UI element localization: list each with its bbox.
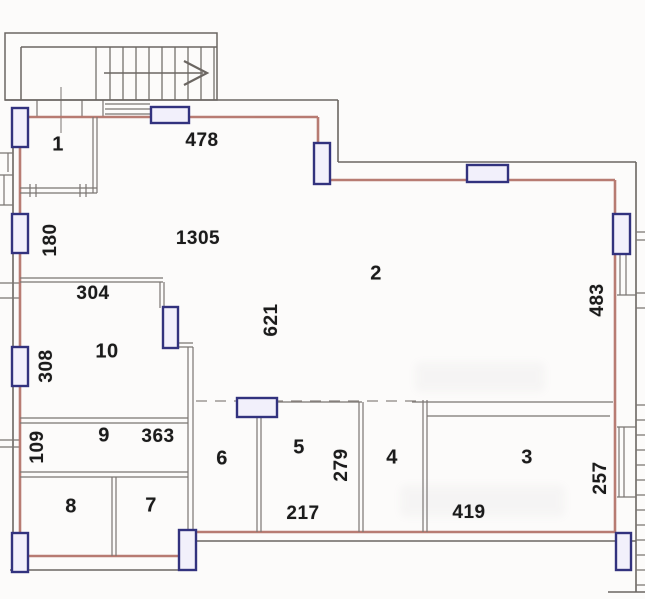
window-top-step — [314, 143, 330, 184]
door-blue-room10 — [163, 307, 178, 348]
watermark-artifact — [415, 362, 545, 392]
room10-room9-wall — [20, 418, 188, 423]
dim-room3-width: 419 — [452, 502, 485, 524]
window-left-top — [12, 108, 28, 147]
window-left-upper — [12, 214, 28, 253]
dim-left-lower: 109 — [27, 430, 49, 463]
dim-room10-width: 304 — [76, 283, 109, 305]
entry-door-lines — [105, 104, 150, 114]
dim-hall-depth: 621 — [261, 303, 283, 336]
staircase — [5, 33, 217, 100]
dim-left-mid: 308 — [36, 349, 58, 382]
dim-room5-depth: 279 — [331, 448, 353, 481]
room1-door-ticks — [30, 184, 86, 197]
window-left-mid — [12, 347, 28, 386]
right-duct-upper — [617, 253, 636, 295]
room-label-6: 6 — [216, 448, 228, 471]
room8-room7-wall — [112, 477, 116, 556]
stairwell-outline — [5, 33, 217, 100]
room6-room5-wall — [257, 417, 261, 532]
room-label-8: 8 — [65, 496, 77, 519]
room-label-2: 2 — [370, 263, 382, 286]
vent-window-room5 — [237, 398, 277, 417]
right-duct-lower — [617, 427, 636, 497]
dim-left-upper: 180 — [40, 223, 62, 256]
room-label-5: 5 — [293, 437, 305, 460]
window-top-right — [467, 165, 508, 182]
dim-top-width: 478 — [185, 130, 218, 152]
window-top-landing — [151, 107, 189, 123]
dim-room5-width: 217 — [286, 503, 319, 525]
dim-right-lower: 257 — [590, 461, 612, 494]
room-label-10: 10 — [95, 341, 118, 364]
window-right-upper — [613, 214, 630, 254]
room9-room8-wall — [20, 472, 188, 477]
room-label-4: 4 — [386, 447, 398, 470]
vestibule-dividers — [37, 100, 103, 117]
room10-jog-wall — [178, 343, 193, 347]
room-label-1: 1 — [52, 134, 64, 157]
dim-room9-width: 363 — [141, 426, 174, 448]
floor-plan-page: 1 2 3 4 5 6 7 8 9 10 478 1305 180 304 62… — [0, 0, 645, 599]
fire-ladder-rungs — [636, 232, 645, 585]
room-label-3: 3 — [521, 447, 533, 470]
window-bottom-middle — [179, 530, 196, 570]
dim-hall-area: 1305 — [176, 228, 220, 250]
left-annex-stubs — [0, 153, 20, 447]
room-label-9: 9 — [98, 425, 110, 448]
room5-room4-wall — [359, 402, 363, 532]
window-right-bottom — [616, 533, 631, 570]
dim-right-upper: 483 — [587, 283, 609, 316]
central-vertical-wall — [188, 347, 193, 533]
room-label-7: 7 — [145, 495, 157, 518]
room3-top-wall — [412, 402, 613, 416]
window-left-bottom — [12, 533, 28, 572]
